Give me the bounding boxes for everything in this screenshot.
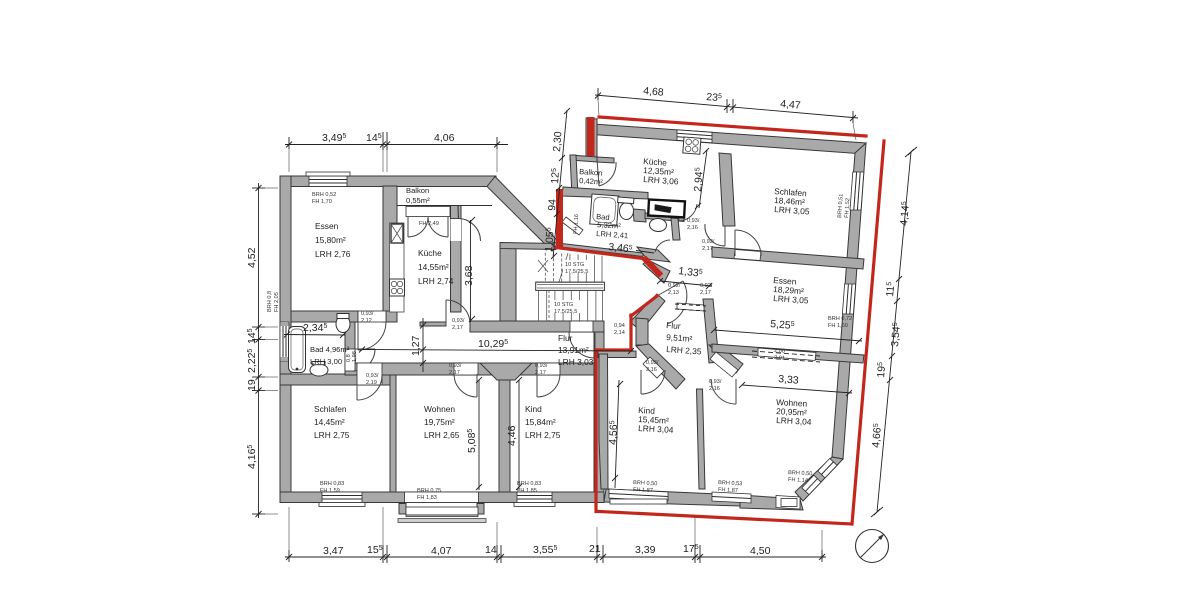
svg-text:FH 1,83: FH 1,83	[417, 495, 437, 501]
svg-text:BRH 0,52: BRH 0,52	[312, 192, 336, 198]
svg-text:17,5/25,5: 17,5/25,5	[554, 309, 577, 315]
svg-text:2,17: 2,17	[702, 246, 713, 252]
svg-text:3,47: 3,47	[323, 545, 344, 557]
svg-text:2,16: 2,16	[709, 386, 720, 392]
svg-text:15,84m²: 15,84m²	[525, 417, 556, 427]
svg-text:FH 1,60: FH 1,60	[828, 323, 848, 329]
svg-text:21: 21	[589, 543, 601, 555]
svg-text:Flur: Flur	[558, 333, 573, 343]
svg-text:14,45m²: 14,45m²	[314, 417, 345, 427]
svg-text:LRH 2,76: LRH 2,76	[315, 249, 351, 259]
svg-text:LRH 2,74: LRH 2,74	[418, 276, 454, 286]
svg-text:2,00: 2,00	[774, 348, 785, 355]
svg-text:19: 19	[246, 379, 258, 391]
svg-text:17,5/25,5: 17,5/25,5	[565, 269, 588, 275]
svg-text:0,55m²: 0,55m²	[406, 196, 430, 205]
svg-text:2,17: 2,17	[535, 370, 546, 376]
svg-text:14: 14	[485, 544, 497, 556]
svg-text:FH 1,85: FH 1,85	[517, 488, 537, 494]
svg-text:BRH 0,72: BRH 0,72	[828, 316, 852, 322]
svg-text:10,295: 10,295	[478, 338, 508, 350]
svg-text:0,93/: 0,93/	[452, 318, 465, 324]
svg-text:4,52: 4,52	[246, 247, 258, 268]
svg-text:14,55m²: 14,55m²	[418, 262, 449, 272]
svg-text:BRH 0,83: BRH 0,83	[517, 481, 541, 487]
svg-text:4,50: 4,50	[750, 545, 771, 557]
svg-text:LRH 3,00: LRH 3,00	[310, 357, 342, 366]
svg-text:1,27: 1,27	[410, 335, 422, 356]
svg-text:10 STG: 10 STG	[554, 302, 573, 308]
svg-text:3,68: 3,68	[463, 265, 475, 286]
svg-text:15,80m²: 15,80m²	[315, 235, 346, 245]
svg-text:Bad 4,96m²: Bad 4,96m²	[310, 345, 350, 354]
svg-text:0,94: 0,94	[614, 323, 625, 329]
svg-text:LRH 3,04: LRH 3,04	[776, 415, 812, 427]
svg-text:3,39: 3,39	[635, 544, 656, 556]
svg-text:2,17: 2,17	[700, 290, 711, 296]
svg-text:0,93/: 0,93/	[366, 373, 379, 379]
svg-text:LRH 2,75: LRH 2,75	[525, 430, 561, 440]
svg-text:Kind: Kind	[525, 404, 542, 414]
svg-text:Balkon: Balkon	[406, 186, 429, 195]
svg-text:0,42m²: 0,42m²	[579, 176, 604, 187]
svg-text:BRH 0,53: BRH 0,53	[718, 480, 743, 487]
svg-text:0,93/: 0,93/	[709, 379, 722, 385]
svg-text:FH 1,14: FH 1,14	[788, 477, 808, 484]
svg-text:4,47: 4,47	[780, 98, 802, 112]
svg-text:9,51m²: 9,51m²	[666, 332, 693, 344]
svg-text:LRH 3,03: LRH 3,03	[558, 357, 594, 367]
svg-text:BRH 0,50: BRH 0,50	[788, 470, 813, 477]
svg-text:Küche: Küche	[418, 248, 442, 258]
svg-text:FH 1,70: FH 1,70	[312, 199, 332, 205]
svg-text:2,30: 2,30	[551, 131, 564, 152]
svg-text:LRH 2,75: LRH 2,75	[314, 430, 350, 440]
svg-text:0,93/: 0,93/	[361, 311, 374, 317]
svg-text:BRH 0,50: BRH 0,50	[633, 480, 658, 487]
svg-text:2,14: 2,14	[614, 330, 625, 336]
svg-text:BRH 0,8: BRH 0,8	[267, 291, 273, 312]
svg-text:FH 1,16: FH 1,16	[573, 214, 580, 234]
svg-text:4,07: 4,07	[431, 545, 452, 557]
svg-text:BRH 0,83: BRH 0,83	[320, 481, 344, 487]
svg-text:0,92/: 0,92/	[668, 283, 681, 289]
svg-text:94: 94	[546, 199, 559, 212]
svg-text:Schlafen: Schlafen	[314, 404, 347, 414]
svg-text:2,17: 2,17	[452, 325, 463, 331]
svg-text:Wohnen: Wohnen	[424, 404, 455, 414]
svg-text:2,16: 2,16	[687, 225, 698, 231]
svg-text:Essen: Essen	[315, 221, 339, 231]
svg-text:FH 1,87: FH 1,87	[633, 487, 653, 494]
svg-text:0,92/: 0,92/	[700, 283, 713, 289]
svg-text:LRH 2,65: LRH 2,65	[424, 430, 460, 440]
svg-text:3,33: 3,33	[778, 373, 800, 387]
svg-text:2,13: 2,13	[668, 290, 679, 296]
svg-text:19,75m²: 19,75m²	[424, 417, 455, 427]
svg-text:4,06: 4,06	[434, 132, 455, 144]
svg-text:2,17: 2,17	[449, 370, 460, 376]
svg-text:FH 1,59: FH 1,59	[320, 488, 340, 494]
svg-text:13,91m²: 13,91m²	[558, 345, 589, 355]
svg-text:1,98: 1,98	[352, 351, 358, 362]
svg-text:0,92/: 0,92/	[702, 239, 715, 245]
svg-text:2,16: 2,16	[646, 367, 657, 373]
svg-text:LRH 3,04: LRH 3,04	[638, 423, 674, 435]
svg-text:FH 1,87: FH 1,87	[718, 487, 738, 494]
svg-text:4,46: 4,46	[506, 425, 518, 446]
svg-text:0,93/: 0,93/	[535, 363, 548, 369]
svg-text:BRH 0,75: BRH 0,75	[417, 488, 441, 494]
svg-text:FH 2,05: FH 2,05	[274, 292, 280, 312]
svg-text:FH 2,49: FH 2,49	[419, 221, 439, 227]
svg-text:0,93/: 0,93/	[646, 360, 659, 366]
svg-text:4,68: 4,68	[643, 85, 665, 99]
svg-text:10 STG: 10 STG	[565, 262, 584, 268]
svg-text:0,93/: 0,93/	[687, 218, 700, 224]
svg-text:2,12: 2,12	[361, 318, 372, 324]
svg-text:0,93/: 0,93/	[449, 363, 462, 369]
svg-text:2,01: 2,01	[774, 355, 785, 362]
svg-text:2,19: 2,19	[366, 380, 377, 386]
svg-text:Flur: Flur	[666, 320, 681, 331]
